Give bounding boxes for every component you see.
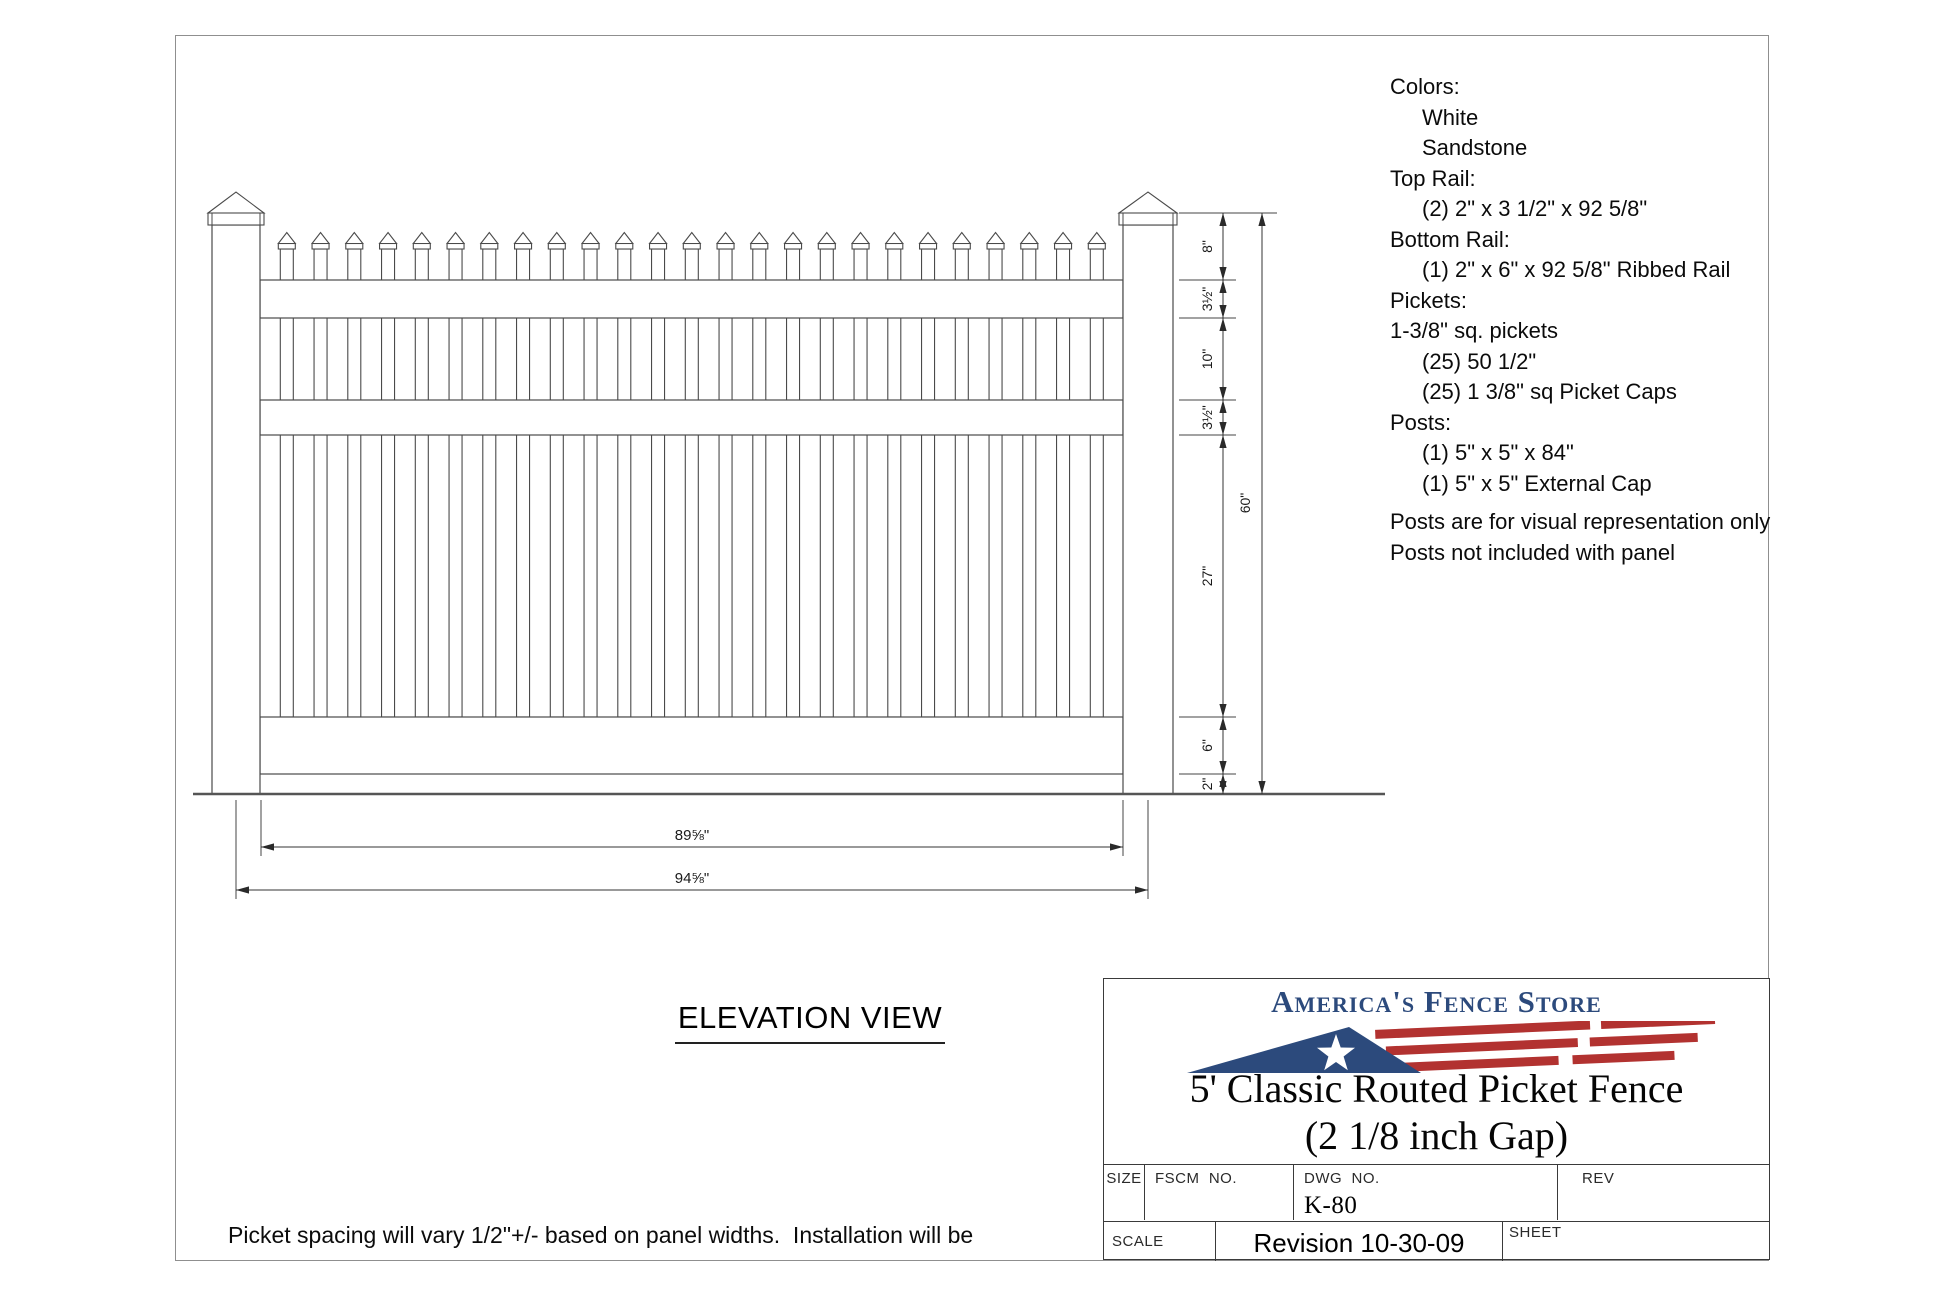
- fscm-label: FSCM NO.: [1155, 1170, 1237, 1187]
- svg-text:8": 8": [1199, 240, 1215, 253]
- spec-line: (2) 2" x 3 1/2" x 92 5/8": [1390, 194, 1770, 225]
- spec-line: (1) 2" x 6" x 92 5/8" Ribbed Rail: [1390, 255, 1770, 286]
- spec-line: (25) 1 3/8" sq Picket Caps: [1390, 377, 1770, 408]
- dwg-label: DWG NO.: [1304, 1170, 1380, 1187]
- spec-line: Bottom Rail:: [1390, 225, 1770, 256]
- spec-line: Posts:: [1390, 408, 1770, 439]
- svg-text:94⅝": 94⅝": [675, 870, 710, 887]
- spec-line: (1) 5" x 5" External Cap: [1390, 469, 1770, 500]
- brand-logo-text: America's Fence Store: [1104, 984, 1769, 1020]
- spec-line: 1-3/8" sq. pickets: [1390, 316, 1770, 347]
- title-block-row2: SCALE Revision 10-30-09 SHEET: [1104, 1221, 1769, 1261]
- installation-note: Picket spacing will vary 1/2"+/- based o…: [228, 1150, 973, 1297]
- svg-text:3½": 3½": [1199, 287, 1215, 311]
- revision-text: Revision 10-30-09: [1216, 1228, 1502, 1259]
- scale-cell: SCALE: [1104, 1222, 1216, 1261]
- svg-text:60": 60": [1237, 493, 1253, 514]
- spec-line: Colors:: [1390, 72, 1770, 103]
- spec-line: White: [1390, 103, 1770, 134]
- svg-text:10": 10": [1199, 349, 1215, 370]
- drawing-sheet: 8"3½"10"3½"27"6"2"60"89⅝"94⅝" Colors:Whi…: [0, 0, 1946, 1297]
- size-label: SIZE: [1106, 1170, 1141, 1187]
- size-cell: SIZE: [1104, 1165, 1145, 1220]
- spec-line: Top Rail:: [1390, 164, 1770, 195]
- svg-text:6": 6": [1199, 739, 1215, 752]
- note-line: Picket spacing will vary 1/2"+/- based o…: [228, 1218, 973, 1252]
- spec-line: Posts not included with panel: [1390, 538, 1770, 569]
- rev-cell: REV: [1558, 1165, 1769, 1220]
- dwg-number: K-80: [1304, 1192, 1357, 1220]
- title-block: America's Fence Store 5' Classic Routed …: [1103, 978, 1770, 1260]
- spec-line: Sandstone: [1390, 133, 1770, 164]
- fscm-cell: FSCM NO.: [1145, 1165, 1294, 1220]
- svg-text:89⅝": 89⅝": [675, 827, 710, 844]
- title-block-row1: SIZE FSCM NO. DWG NO. K-80 REV: [1104, 1164, 1769, 1220]
- svg-text:2": 2": [1199, 778, 1215, 791]
- spec-line: Pickets:: [1390, 286, 1770, 317]
- dwg-cell: DWG NO. K-80: [1294, 1165, 1558, 1220]
- drawing-title-line1: 5' Classic Routed Picket Fence: [1104, 1065, 1769, 1112]
- spec-line: (1) 5" x 5" x 84": [1390, 438, 1770, 469]
- scale-label: SCALE: [1112, 1233, 1164, 1250]
- svg-text:3½": 3½": [1199, 405, 1215, 429]
- spec-block: Colors:WhiteSandstoneTop Rail:(2) 2" x 3…: [1390, 72, 1770, 568]
- spec-line: (25) 50 1/2": [1390, 347, 1770, 378]
- sheet-label: SHEET: [1509, 1224, 1562, 1241]
- revision-cell: Revision 10-30-09: [1216, 1222, 1503, 1261]
- elevation-view-label: ELEVATION VIEW: [560, 1000, 1060, 1044]
- svg-text:27": 27": [1199, 566, 1215, 587]
- elevation-view-text: ELEVATION VIEW: [675, 1000, 945, 1044]
- drawing-title-line2: (2 1/8 inch Gap): [1104, 1112, 1769, 1159]
- rev-label: REV: [1582, 1170, 1614, 1187]
- sheet-cell: SHEET: [1503, 1222, 1769, 1261]
- spec-line: Posts are for visual representation only: [1390, 507, 1770, 538]
